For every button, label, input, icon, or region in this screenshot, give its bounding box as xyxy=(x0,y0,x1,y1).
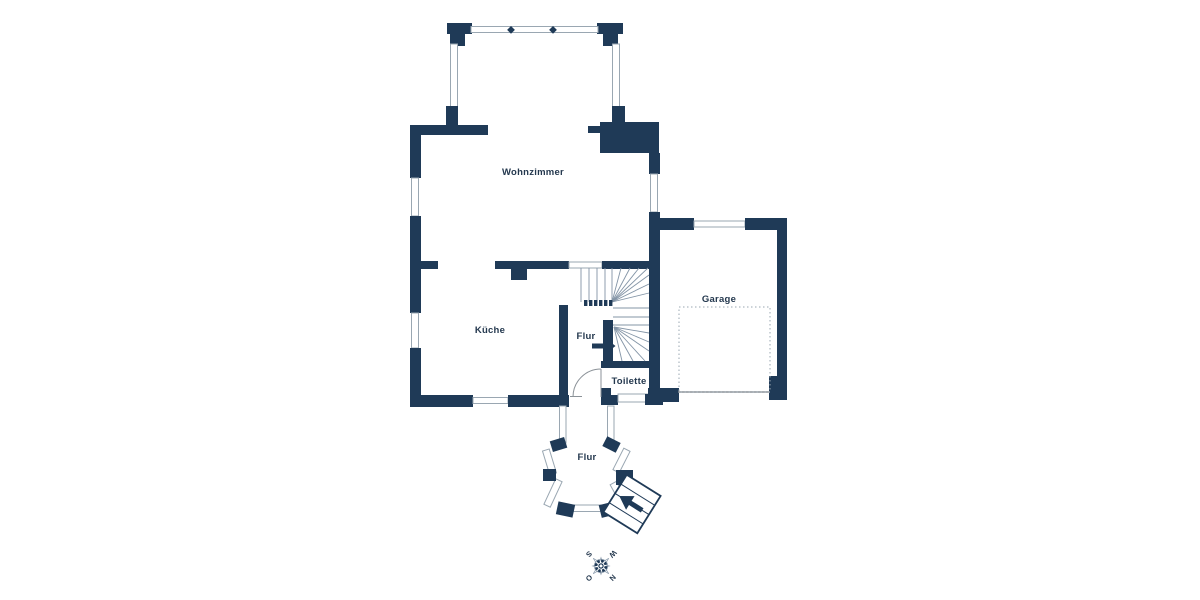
wall-segment xyxy=(559,305,568,397)
room-label-garage: Garage xyxy=(702,294,736,305)
wall-segment xyxy=(601,395,618,405)
wall-pillar xyxy=(556,501,575,517)
wall-segment xyxy=(410,216,421,313)
window xyxy=(613,44,620,108)
wall-pillar xyxy=(602,436,620,453)
window xyxy=(694,221,745,227)
parking-space-outline xyxy=(679,307,770,392)
stair-treads-upper xyxy=(581,268,649,302)
room-label-flur-entrance: Flur xyxy=(578,452,597,463)
wall-segment xyxy=(602,261,659,269)
wall-segment xyxy=(511,268,527,280)
window xyxy=(473,398,508,404)
staircase xyxy=(581,268,649,361)
window xyxy=(412,313,419,348)
stair-cut-mark xyxy=(584,300,612,306)
room-label-kueche: Küche xyxy=(475,325,505,336)
wall-segment xyxy=(446,106,458,128)
front-door xyxy=(570,369,601,397)
bay-window-north xyxy=(446,23,625,128)
chimney-block xyxy=(600,122,659,153)
compass-north-label: N xyxy=(608,573,618,583)
wall-segment xyxy=(421,261,438,269)
window xyxy=(471,27,598,33)
window xyxy=(412,178,419,216)
wall-segment xyxy=(645,394,663,405)
compass-east-label: O xyxy=(584,573,595,584)
window xyxy=(651,174,658,212)
interior-window xyxy=(569,262,602,268)
stair-landing xyxy=(613,308,649,325)
wall-pillar xyxy=(543,469,556,481)
floor-plan-drawing: Wohnzimmer Küche Flur Toilette Garage Fl… xyxy=(0,0,1200,600)
garage-structure xyxy=(658,218,787,400)
wall-segment xyxy=(410,395,473,407)
wall-segment xyxy=(649,153,660,174)
compass-rose-icon: N O S W xyxy=(572,536,631,595)
compass-south-label: S xyxy=(584,549,594,559)
wall-segment xyxy=(410,125,421,178)
floor-plan-canvas: Wohnzimmer Küche Flur Toilette Garage Fl… xyxy=(0,0,1200,600)
wall-segment xyxy=(769,376,787,400)
room-label-flur: Flur xyxy=(577,331,596,342)
wall-segment xyxy=(601,361,659,368)
wall-segment xyxy=(410,125,488,135)
window xyxy=(451,44,458,108)
window xyxy=(572,505,602,512)
wall-segment xyxy=(658,218,694,230)
room-label-toilette: Toilette xyxy=(611,376,646,387)
door-swing-arc xyxy=(573,369,601,397)
wall-segment xyxy=(495,261,569,269)
stair-treads-lower xyxy=(614,327,649,361)
wall-pillar xyxy=(550,437,568,452)
room-label-wohnzimmer: Wohnzimmer xyxy=(502,167,564,178)
wall-segment xyxy=(777,228,787,378)
